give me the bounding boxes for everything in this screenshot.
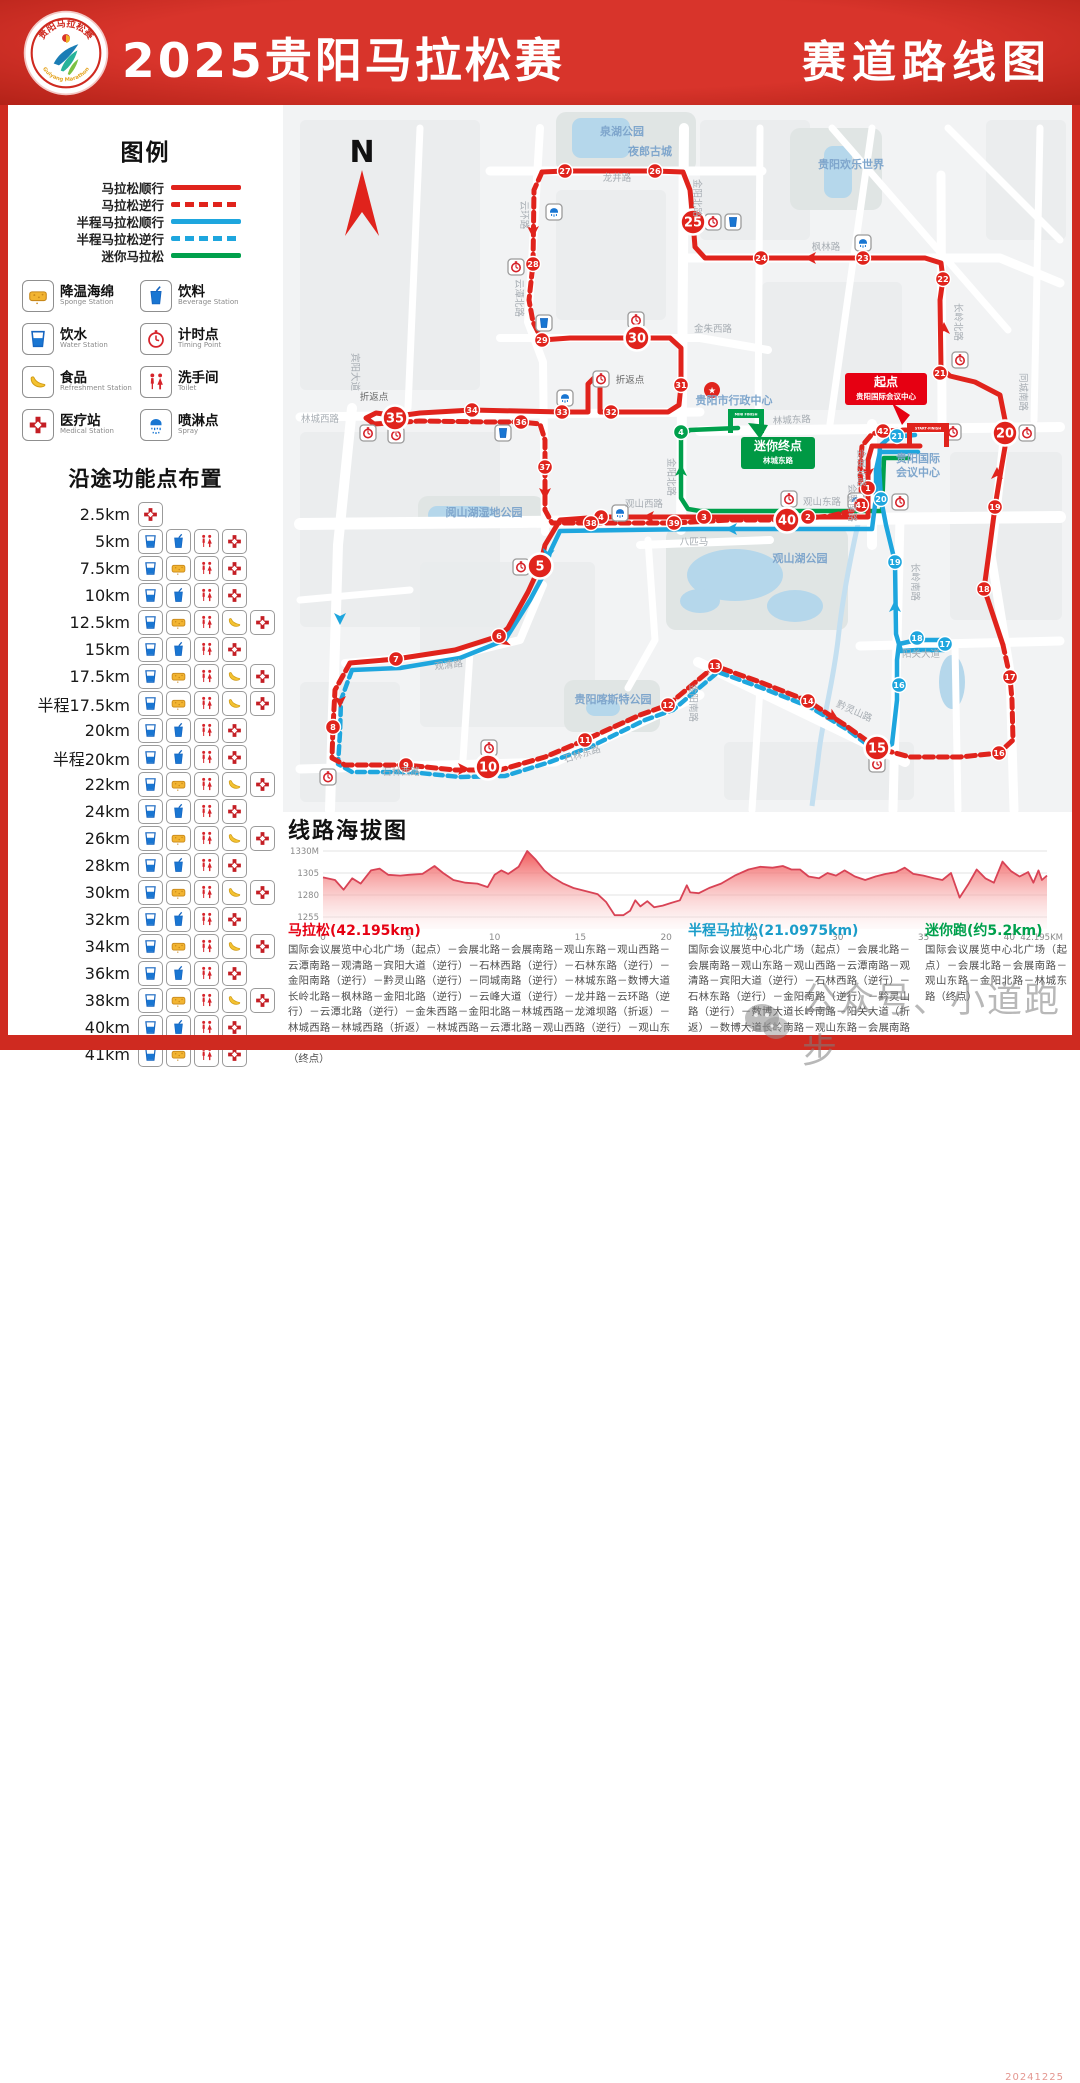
beverage-icon-box [140, 280, 172, 312]
svg-text:17: 17 [1004, 672, 1016, 682]
sponge-icon [170, 668, 187, 685]
km-marker-red: 16 [992, 746, 1007, 761]
svg-text:15: 15 [868, 742, 886, 757]
svg-text:3: 3 [701, 512, 707, 522]
water-station-icon [495, 425, 511, 441]
km-label: 15km [8, 640, 130, 659]
station-label-en: Sponge Station [60, 299, 114, 306]
medical-icon [254, 668, 271, 685]
km-marker-red: 26 [648, 164, 663, 179]
water-icon [142, 722, 159, 739]
beverage-icon [170, 803, 187, 820]
food-icon-box [222, 826, 247, 851]
km-marker-red: 18 [977, 582, 992, 597]
medical-icon [254, 992, 271, 1009]
food-icon-box [22, 366, 54, 398]
function-point-row: 24km [8, 798, 283, 825]
toilet-icon [198, 722, 215, 739]
function-point-row: 22km [8, 771, 283, 798]
food-icon [226, 884, 243, 901]
sponge-icon [170, 560, 187, 577]
water-icon [142, 668, 159, 685]
km-marker-red: 35 [383, 406, 408, 431]
legend-line-item: 马拉松顺行 [8, 179, 283, 196]
medical-icon [254, 884, 271, 901]
function-points-title: 沿途功能点布置 [8, 463, 283, 493]
legend-line-sample [171, 185, 241, 190]
beverage-icon-box [166, 583, 191, 608]
beverage-icon-box [166, 637, 191, 662]
road-label: 同城南路 [1017, 373, 1029, 412]
medical-icon [226, 965, 243, 982]
sponge-icon [170, 830, 187, 847]
svg-text:20: 20 [996, 427, 1014, 442]
sponge-icon-box [22, 280, 54, 312]
svg-text:33: 33 [556, 407, 568, 417]
function-point-row: 7.5km [8, 555, 283, 582]
road-label: 龙井路 [603, 172, 632, 184]
km-marker-green: 4 [674, 425, 689, 440]
beverage-icon [170, 857, 187, 874]
sponge-icon-box [166, 610, 191, 635]
food-icon-box [222, 772, 247, 797]
svg-text:12: 12 [662, 700, 673, 710]
legend-station-item: 医疗站Medical Station [22, 409, 140, 441]
route-desc-text: 国际会议展览中心北广场（起点）－会展北路－会展南路－观山东路－金阳北路－林城东路… [925, 943, 1067, 1005]
toilet-icon-box [194, 745, 219, 770]
km-marker-blue: 21 [890, 429, 905, 444]
north-label: N [349, 135, 374, 170]
timing-station-icon [1019, 425, 1035, 441]
toilet-icon-box [140, 366, 172, 398]
km-marker-red: 7 [389, 652, 404, 667]
km-label: 34km [8, 937, 130, 956]
food-icon [226, 695, 243, 712]
toilet-icon-box [194, 637, 219, 662]
svg-text:迷你终点: 迷你终点 [753, 438, 802, 453]
toilet-icon-box [194, 556, 219, 581]
legend-line-item: 半程马拉松逆行 [8, 230, 283, 247]
sponge-icon-box [166, 691, 191, 716]
legend-line-label: 迷你马拉松 [101, 246, 164, 265]
elev-y-tick: 1330M [290, 847, 319, 857]
svg-text:34: 34 [466, 405, 478, 415]
station-label: 医疗站 [60, 414, 114, 428]
legend-line-item: 马拉松逆行 [8, 196, 283, 213]
toilet-icon-box [194, 529, 219, 554]
road-label: 折返点 [616, 374, 645, 386]
landmark-label: 贵阳市行政中心 [696, 393, 773, 407]
toilet-icon [145, 371, 167, 393]
medical-icon-box [250, 826, 275, 851]
station-label-en: Spray [178, 428, 219, 435]
food-icon [27, 371, 49, 393]
landmark-label: 会议中心 [896, 465, 940, 479]
km-marker-red: 40 [775, 508, 800, 533]
sponge-icon [170, 614, 187, 631]
svg-text:林城东路: 林城东路 [763, 455, 793, 465]
road-label: 云潭北路 [513, 279, 525, 318]
toilet-icon [198, 830, 215, 847]
medical-icon-box [222, 637, 247, 662]
km-label: 10km [8, 586, 130, 605]
km-marker-red: 11 [578, 733, 593, 748]
km-marker-red: 6 [492, 629, 507, 644]
medical-icon-box [222, 529, 247, 554]
toilet-icon [198, 587, 215, 604]
km-marker-red: 20 [993, 421, 1018, 446]
beverage-icon [170, 1019, 187, 1036]
beverage-icon [170, 965, 187, 982]
station-label: 降温海绵 [60, 285, 114, 299]
medical-icon [226, 803, 243, 820]
park-label: 贵阳欢乐世界 [818, 157, 884, 171]
water-icon-box [138, 664, 163, 689]
water-icon-box [138, 961, 163, 986]
legend-line-sample [171, 236, 241, 241]
beverage-icon [170, 641, 187, 658]
km-marker-red: 33 [555, 405, 570, 420]
function-point-row: 26km [8, 825, 283, 852]
legend-station-list: 降温海绵Sponge Station饮料Beverage Station饮水Wa… [22, 280, 283, 441]
route-desc-title: 半程马拉松(21.0975km) [688, 920, 910, 940]
km-label: 20km [8, 721, 130, 740]
medical-icon [226, 749, 243, 766]
sponge-icon [27, 285, 49, 307]
station-label-en: Medical Station [60, 428, 114, 435]
toilet-icon-box [194, 583, 219, 608]
km-marker-red: 21 [933, 366, 948, 381]
park-label: 观山湖公园 [773, 551, 828, 565]
toilet-icon-box [194, 853, 219, 878]
svg-text:22: 22 [937, 274, 948, 284]
page-subtitle: 赛道路线图 [802, 26, 1052, 90]
medical-icon [226, 722, 243, 739]
km-marker-red: 32 [604, 405, 619, 420]
marathon-logo: 贵阳马拉松赛 Guiyang Marathon [22, 9, 110, 97]
function-point-row: 10km [8, 582, 283, 609]
svg-text:40: 40 [778, 514, 796, 529]
water-icon-box [138, 988, 163, 1013]
frame-right [1072, 105, 1080, 1050]
km-marker-red: 13 [708, 659, 723, 674]
beverage-icon [170, 533, 187, 550]
lake [824, 146, 852, 198]
legend-line-sample [171, 219, 241, 224]
medical-icon [254, 776, 271, 793]
svg-text:19: 19 [989, 502, 1001, 512]
legend-station-item: 饮料Beverage Station [140, 280, 260, 312]
svg-text:42: 42 [877, 426, 888, 436]
water-icon [142, 695, 159, 712]
sponge-icon-box [166, 664, 191, 689]
svg-text:16: 16 [993, 748, 1005, 758]
beverage-icon [170, 722, 187, 739]
food-icon-box [222, 988, 247, 1013]
park-label: 泉湖公园 [599, 124, 644, 138]
svg-text:24: 24 [755, 253, 767, 263]
toilet-icon [198, 560, 215, 577]
water-icon [142, 857, 159, 874]
function-point-row: 半程20km [8, 744, 283, 771]
food-icon [226, 830, 243, 847]
svg-text:37: 37 [539, 462, 551, 472]
medical-icon-box [250, 772, 275, 797]
timing-station-icon [892, 494, 908, 510]
medical-icon [226, 1019, 243, 1036]
medical-icon [226, 641, 243, 658]
toilet-icon [198, 614, 215, 631]
water-icon [142, 776, 159, 793]
km-marker-red: 39 [667, 516, 682, 531]
beverage-icon-box [166, 718, 191, 743]
water-icon [142, 1019, 159, 1036]
sponge-icon [170, 884, 187, 901]
km-label: 2.5km [8, 505, 130, 524]
food-icon [226, 668, 243, 685]
svg-text:39: 39 [668, 518, 680, 528]
park-label: 阅山湖湿地公园 [446, 505, 523, 519]
timing-station-icon [593, 371, 609, 387]
function-point-row: 28km [8, 852, 283, 879]
water-icon-box [138, 934, 163, 959]
road-label: 林城东路 [773, 413, 812, 427]
legend-station-item: 食品Refreshment Station [22, 366, 140, 398]
medical-icon [254, 830, 271, 847]
km-marker-red: 31 [674, 378, 689, 393]
water-station-icon [725, 214, 741, 230]
toilet-icon-box [194, 664, 219, 689]
medical-icon [254, 614, 271, 631]
svg-text:START·FINISH: START·FINISH [915, 427, 941, 431]
km-marker-red: 38 [584, 516, 599, 531]
park-label: 贵阳喀斯特公园 [575, 692, 652, 706]
svg-text:28: 28 [527, 259, 539, 269]
spray-station-icon [855, 235, 871, 251]
function-point-row: 半程17.5km [8, 690, 283, 717]
lake [572, 118, 630, 158]
food-icon-box [222, 880, 247, 905]
km-marker-red: 34 [465, 403, 480, 418]
timing-icon [145, 328, 167, 350]
elevation-title: 线路海拔图 [288, 813, 408, 845]
svg-text:18: 18 [978, 584, 990, 594]
water-icon [142, 533, 159, 550]
km-label: 30km [8, 883, 130, 902]
legend-line-list: 马拉松顺行马拉松逆行半程马拉松顺行半程马拉松逆行迷你马拉松 [8, 179, 283, 264]
water-icon [142, 884, 159, 901]
landmark-label: 贵阳国际 [896, 451, 940, 465]
road-label: 云环路 [518, 201, 530, 230]
sponge-icon [170, 695, 187, 712]
water-icon [142, 938, 159, 955]
medical-icon [226, 911, 243, 928]
medical-icon-box [250, 880, 275, 905]
medical-icon-box [138, 502, 163, 527]
km-marker-red: 36 [514, 415, 529, 430]
svg-text:30: 30 [628, 332, 646, 347]
water-icon-box [138, 799, 163, 824]
water-icon [142, 911, 159, 928]
station-label-en: Water Station [60, 342, 108, 349]
km-label: 28km [8, 856, 130, 875]
toilet-icon-box [194, 610, 219, 635]
station-label-en: Refreshment Station [60, 385, 132, 392]
legend-station-item: 降温海绵Sponge Station [22, 280, 140, 312]
food-icon-box [222, 691, 247, 716]
svg-text:21: 21 [934, 368, 946, 378]
km-marker-red: 10 [476, 755, 501, 780]
legend-station-item: 计时点Timing Point [140, 323, 260, 355]
medical-icon-box [250, 610, 275, 635]
lake [680, 589, 720, 613]
sponge-icon-box [166, 556, 191, 581]
city-block [950, 452, 1062, 620]
road-label: 长岭南路 [909, 563, 921, 602]
km-marker-red: 24 [754, 251, 769, 266]
toilet-icon-box [194, 880, 219, 905]
road-label: 宾阳大道 [349, 353, 361, 392]
city-block [556, 190, 666, 320]
sponge-icon-box [166, 772, 191, 797]
toilet-icon-box [194, 934, 219, 959]
road [758, 128, 760, 424]
legend-title: 图例 [8, 133, 283, 167]
route-desc-mini: 迷你跑(约5.2km) 国际会议展览中心北广场（起点）－会展北路－会展南路－观山… [925, 920, 1067, 1005]
svg-text:27: 27 [559, 166, 571, 176]
km-marker-red: 37 [538, 460, 553, 475]
medical-icon-box [222, 745, 247, 770]
svg-text:7: 7 [393, 654, 399, 664]
toilet-icon [198, 992, 215, 1009]
city-block [300, 120, 480, 390]
medical-icon [254, 695, 271, 712]
toilet-icon [198, 911, 215, 928]
svg-text:21: 21 [891, 431, 903, 441]
km-marker-red: 30 [625, 326, 650, 351]
road-label: 观山西路 [625, 498, 664, 510]
water-icon [142, 965, 159, 982]
elev-y-tick: 1280 [297, 891, 319, 901]
svg-text:5: 5 [535, 560, 544, 575]
svg-text:起点: 起点 [873, 374, 898, 389]
km-label: 24km [8, 802, 130, 821]
water-icon-box [138, 853, 163, 878]
station-label-en: Toilet [178, 385, 219, 392]
km-marker-red: 42 [876, 424, 891, 439]
road-label: 会展北路 [855, 449, 867, 488]
water-icon [142, 614, 159, 631]
legend-line-sample [171, 253, 241, 258]
water-icon-box [138, 772, 163, 797]
toilet-icon [198, 803, 215, 820]
toilet-icon [198, 641, 215, 658]
medical-icon [142, 506, 159, 523]
km-marker-blue: 16 [892, 678, 907, 693]
left-panel: 图例 马拉松顺行马拉松逆行半程马拉松顺行半程马拉松逆行迷你马拉松 降温海绵Spo… [8, 105, 283, 1035]
svg-text:14: 14 [802, 696, 814, 706]
medical-icon-box [222, 583, 247, 608]
sponge-icon-box [166, 988, 191, 1013]
water-icon-box [138, 583, 163, 608]
km-marker-red: 22 [936, 272, 951, 287]
food-icon [226, 992, 243, 1009]
svg-text:13: 13 [709, 661, 721, 671]
beverage-icon-box [166, 961, 191, 986]
svg-text:8: 8 [330, 722, 336, 732]
medical-icon [226, 560, 243, 577]
toilet-icon [198, 857, 215, 874]
svg-text:26: 26 [649, 166, 661, 176]
road [955, 645, 958, 810]
food-icon [226, 938, 243, 955]
page-title: 2025贵阳马拉松赛 [122, 22, 565, 91]
km-label: 26km [8, 829, 130, 848]
road-label: 长岭北路 [952, 303, 964, 342]
km-label: 36km [8, 964, 130, 983]
medical-icon-box [222, 907, 247, 932]
km-marker-red: 15 [865, 736, 890, 761]
sponge-icon-box [166, 880, 191, 905]
toilet-icon [198, 749, 215, 766]
km-marker-blue: 18 [910, 631, 925, 646]
svg-text:16: 16 [893, 680, 905, 690]
legend-station-item: 洗手间Toilet [140, 366, 260, 398]
water-icon-box [138, 529, 163, 554]
food-icon-box [222, 610, 247, 635]
road-label: 枫林路 [812, 241, 841, 253]
km-marker-red: 14 [801, 694, 816, 709]
sponge-icon [170, 992, 187, 1009]
svg-text:20: 20 [875, 494, 887, 504]
svg-text:11: 11 [579, 735, 591, 745]
function-point-row: 2.5km [8, 501, 283, 528]
km-marker-red: 12 [661, 698, 676, 713]
toilet-icon-box [194, 691, 219, 716]
km-label: 38km [8, 991, 130, 1010]
medical-icon-box [250, 691, 275, 716]
timing-station-icon [705, 214, 721, 230]
water-icon-box [138, 718, 163, 743]
food-icon [226, 614, 243, 631]
toilet-icon [198, 668, 215, 685]
road-label: 折返点 [360, 391, 389, 403]
header-bar: 贵阳马拉松赛 Guiyang Marathon 2025贵阳马拉松赛 赛道路线图 [0, 0, 1080, 105]
route-desc-title: 迷你跑(约5.2km) [925, 920, 1067, 940]
toilet-icon-box [194, 799, 219, 824]
km-marker-red: 8 [326, 720, 341, 735]
road-label: 金阳北路 [665, 458, 677, 497]
function-point-row: 30km [8, 879, 283, 906]
park-label: 夜郎古城 [627, 144, 672, 158]
beverage-icon-box [166, 745, 191, 770]
route-desc-title: 马拉松(42.195km) [288, 920, 670, 940]
km-label: 12.5km [8, 613, 130, 632]
beverage-icon-box [166, 907, 191, 932]
medical-icon-box [222, 556, 247, 581]
svg-text:4: 4 [598, 512, 604, 522]
toilet-icon [198, 884, 215, 901]
toilet-icon-box [194, 961, 219, 986]
water-icon [142, 641, 159, 658]
km-marker-red: 5 [528, 554, 553, 579]
svg-text:19: 19 [889, 557, 901, 567]
water-icon-box [138, 826, 163, 851]
toilet-icon-box [194, 718, 219, 743]
km-marker-red: 29 [535, 333, 550, 348]
km-label: 7.5km [8, 559, 130, 578]
legend-line-item: 半程马拉松顺行 [8, 213, 283, 230]
